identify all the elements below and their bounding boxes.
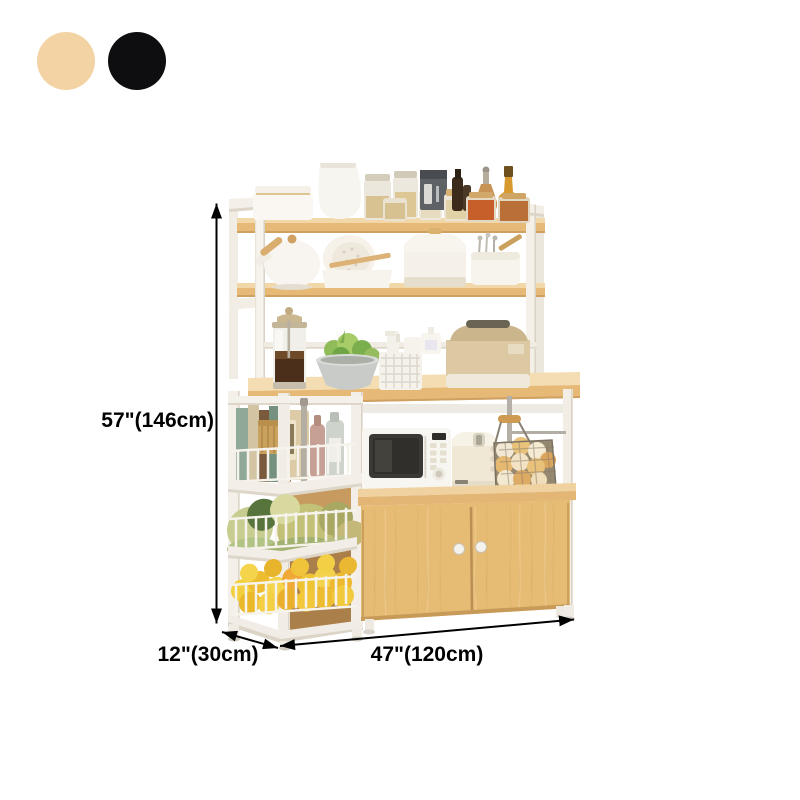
svg-text:47"(120cm): 47"(120cm) [371,643,484,666]
svg-text:12"(30cm): 12"(30cm) [157,643,258,666]
svg-text:57"(146cm): 57"(146cm) [101,409,214,432]
